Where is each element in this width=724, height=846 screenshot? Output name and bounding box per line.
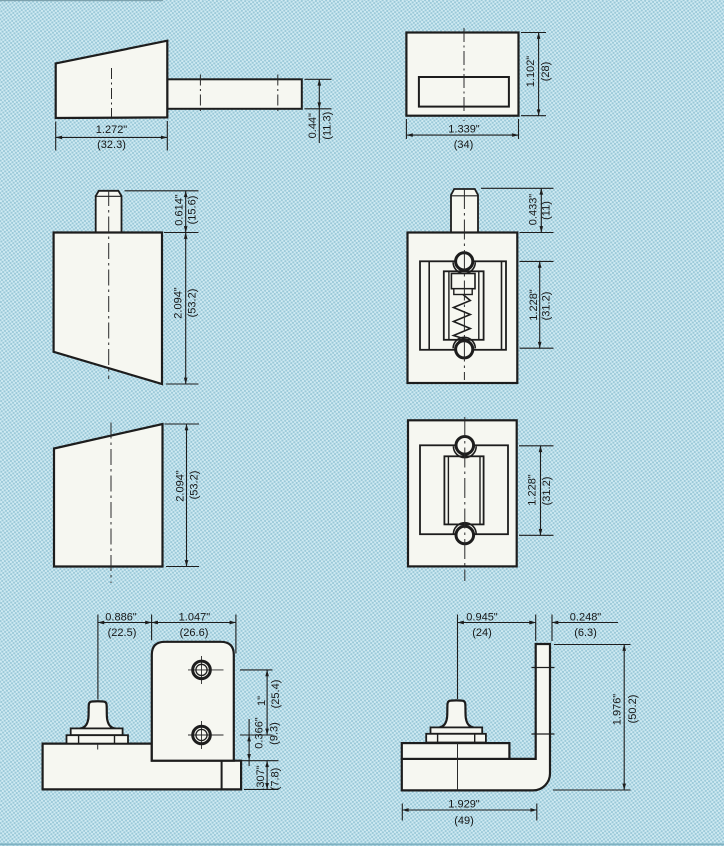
svg-text:1.339": 1.339" — [448, 124, 480, 136]
svg-text:(9.3): (9.3) — [268, 722, 280, 745]
svg-text:1.976": 1.976" — [612, 694, 624, 726]
svg-text:(22.5): (22.5) — [108, 627, 137, 639]
svg-text:1.228": 1.228" — [528, 289, 540, 321]
svg-text:(26.6): (26.6) — [180, 627, 209, 639]
svg-text:(31.2): (31.2) — [541, 292, 553, 321]
svg-text:(7.8): (7.8) — [269, 768, 281, 791]
svg-text:(11): (11) — [541, 201, 553, 220]
svg-text:(49): (49) — [454, 815, 474, 827]
svg-text:1.228": 1.228" — [526, 474, 538, 506]
svg-text:1.102": 1.102" — [525, 56, 537, 88]
svg-text:1.272": 1.272" — [96, 124, 128, 136]
svg-text:0.614": 0.614" — [173, 194, 185, 226]
svg-text:(50.2): (50.2) — [627, 695, 639, 724]
svg-text:(6.3): (6.3) — [574, 627, 597, 639]
svg-text:0.248": 0.248" — [570, 611, 602, 623]
svg-text:2.094": 2.094" — [174, 470, 186, 502]
svg-text:(34): (34) — [454, 139, 474, 151]
svg-text:(32.3): (32.3) — [97, 139, 126, 151]
svg-text:(31.2): (31.2) — [541, 477, 553, 506]
svg-text:1.929": 1.929" — [448, 799, 480, 811]
svg-text:(24): (24) — [472, 627, 492, 639]
svg-text:.307": .307" — [255, 765, 267, 790]
svg-text:0.433": 0.433" — [527, 194, 539, 226]
svg-text:0.44": 0.44" — [307, 113, 319, 138]
svg-text:(11.3): (11.3) — [322, 112, 334, 140]
svg-text:(15.6): (15.6) — [187, 196, 199, 225]
svg-text:0.366": 0.366" — [253, 717, 265, 749]
svg-text:0.886": 0.886" — [105, 611, 137, 623]
svg-text:(28): (28) — [540, 62, 552, 82]
svg-text:0.945": 0.945" — [466, 611, 498, 623]
svg-text:1": 1" — [256, 696, 268, 706]
svg-text:(53.2): (53.2) — [188, 471, 200, 500]
svg-text:1.047": 1.047" — [179, 611, 211, 623]
svg-text:(25.4): (25.4) — [270, 680, 282, 709]
svg-text:(53.2): (53.2) — [187, 289, 199, 318]
svg-text:2.094": 2.094" — [173, 287, 185, 319]
